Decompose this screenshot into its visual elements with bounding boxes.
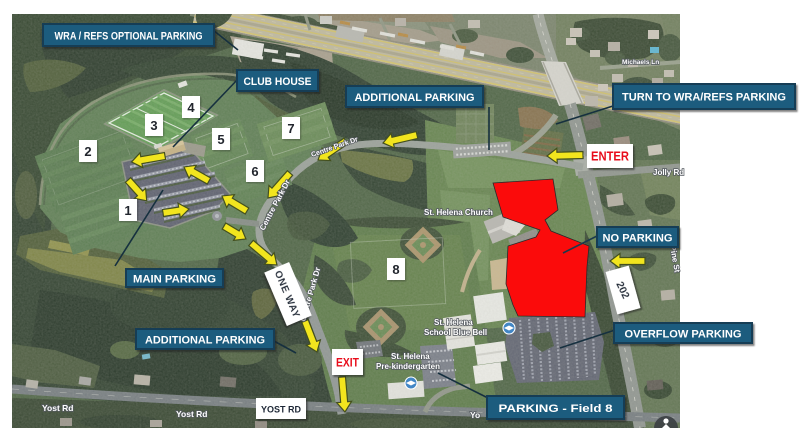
svg-text:8: 8 (392, 262, 399, 277)
svg-text:5: 5 (217, 132, 224, 147)
svg-text:EXIT: EXIT (336, 356, 360, 370)
svg-text:School Blue Bell: School Blue Bell (424, 328, 487, 337)
svg-text:NO PARKING: NO PARKING (603, 233, 673, 245)
svg-text:PARKING - Field 8: PARKING - Field 8 (499, 403, 613, 415)
svg-text:St. Helena: St. Helena (434, 318, 473, 327)
svg-text:1: 1 (124, 203, 131, 218)
svg-text:OVERFLOW PARKING: OVERFLOW PARKING (625, 329, 742, 341)
svg-text:Yo: Yo (470, 410, 480, 420)
svg-text:CLUB HOUSE: CLUB HOUSE (244, 76, 312, 88)
svg-text:St. Helena: St. Helena (391, 352, 430, 361)
svg-text:ADDITIONAL PARKING: ADDITIONAL PARKING (355, 92, 475, 104)
svg-text:MAIN PARKING: MAIN PARKING (133, 274, 216, 286)
svg-text:7: 7 (287, 121, 294, 136)
svg-text:TURN TO WRA/REFS PARKING: TURN TO WRA/REFS PARKING (622, 92, 786, 104)
svg-text:ADDITIONAL PARKING: ADDITIONAL PARKING (145, 335, 265, 347)
svg-text:WRA / REFS OPTIONAL PARKING: WRA / REFS OPTIONAL PARKING (55, 31, 203, 43)
svg-text:St. Helena Church: St. Helena Church (424, 208, 493, 217)
svg-text:4: 4 (187, 100, 195, 115)
svg-text:Pre-kindergarten: Pre-kindergarten (376, 362, 440, 371)
svg-text:Yost Rd: Yost Rd (176, 409, 207, 419)
svg-text:Michaels Ln: Michaels Ln (622, 59, 659, 66)
svg-text:Yost Rd: Yost Rd (42, 403, 73, 413)
svg-text:3: 3 (150, 118, 157, 133)
svg-text:YOST RD: YOST RD (261, 405, 302, 415)
svg-text:Jolly Rd: Jolly Rd (653, 168, 684, 177)
svg-text:ENTER: ENTER (591, 150, 629, 164)
svg-text:6: 6 (251, 164, 258, 179)
svg-text:2: 2 (84, 144, 91, 159)
